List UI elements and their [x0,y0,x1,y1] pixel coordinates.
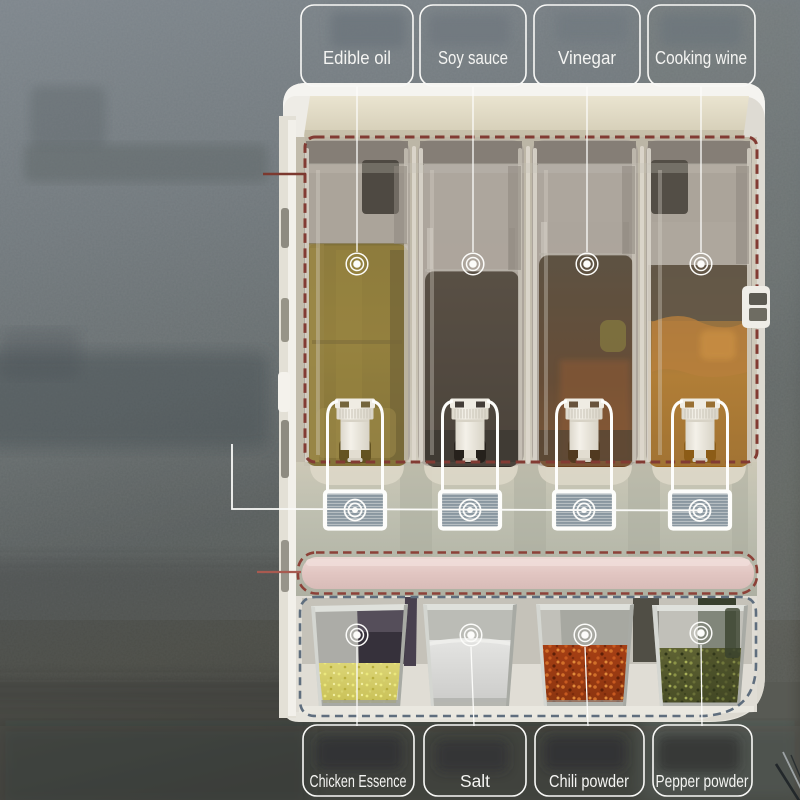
svg-text:Vinegar: Vinegar [558,47,616,68]
svg-text:Edible oil: Edible oil [323,47,391,68]
svg-text:Chili powder: Chili powder [549,771,629,791]
svg-text:Chicken Essence: Chicken Essence [310,771,407,791]
svg-text:Soy sauce: Soy sauce [438,47,508,68]
svg-text:Pepper powder: Pepper powder [656,771,749,791]
svg-text:Cooking wine: Cooking wine [655,47,747,68]
svg-text:Salt: Salt [460,771,490,791]
